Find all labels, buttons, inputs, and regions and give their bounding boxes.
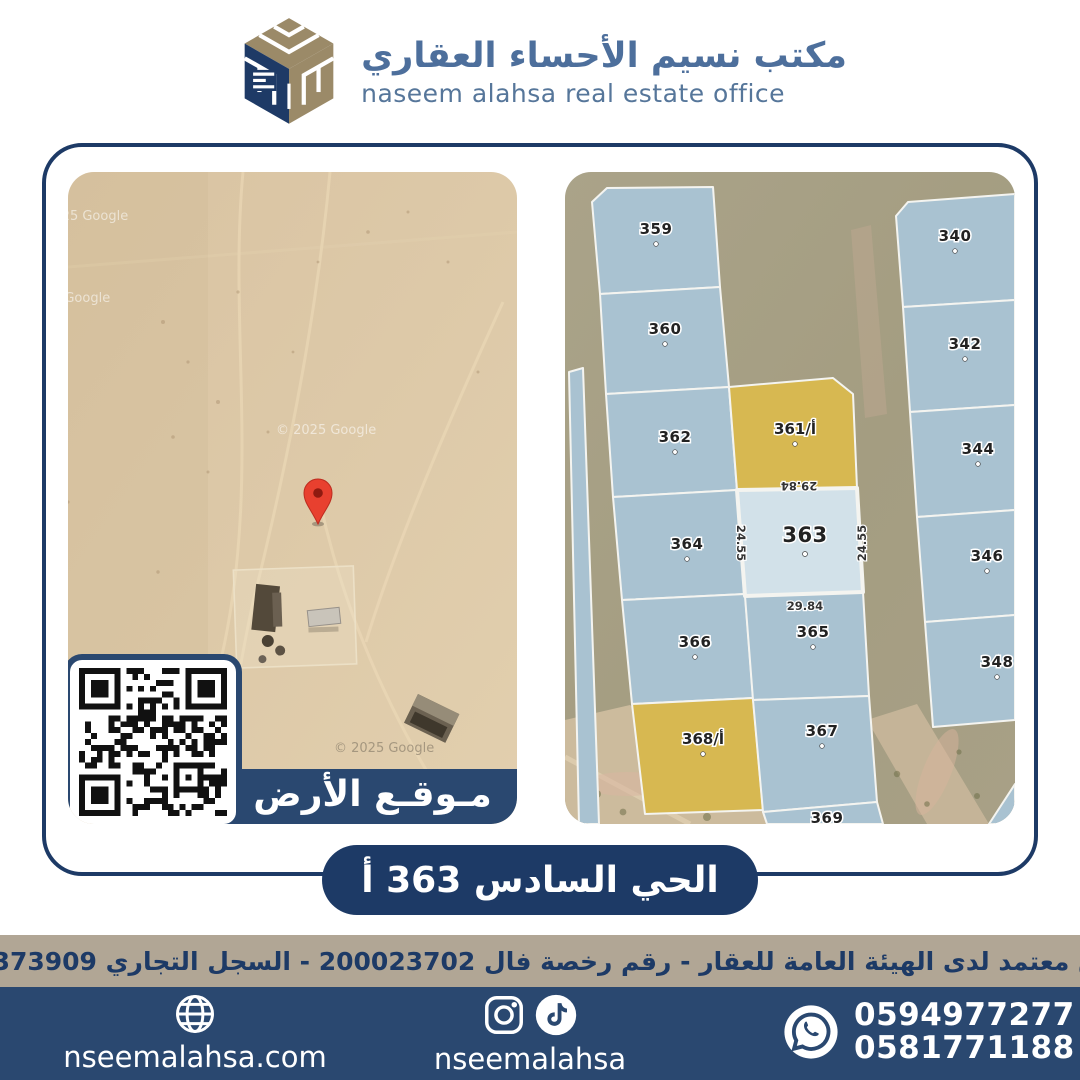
plot-344 [910, 405, 1015, 517]
google-watermark: © 2025 Google [68, 291, 110, 306]
social-group: nseemalahsa [430, 993, 630, 1076]
license-bar: مسوق معتمد لدى الهيئة العامة للعقار - رق… [0, 935, 1080, 987]
compound-structure [233, 566, 356, 668]
plot-360 [600, 287, 729, 394]
phone-number-2: 0581771188 [854, 1032, 1075, 1065]
plot-label-363: 363 [782, 523, 827, 547]
plot-348 [925, 615, 1015, 727]
website-url: nseemalahsa.com [63, 1040, 326, 1074]
plot-label: 362 [659, 428, 692, 446]
plot-label: أ/361 [774, 419, 816, 438]
plot-label: 342 [949, 335, 982, 353]
instagram-icon [482, 993, 526, 1037]
social-icons [482, 993, 578, 1037]
flyer-page: { "header": { "title_ar": "مكتب نسيم الأ… [0, 0, 1080, 1080]
company-logo-hexagon-icon [233, 15, 345, 129]
phone-number-1: 0594977277 [854, 999, 1075, 1032]
google-watermark: © 2025 Google [334, 741, 434, 756]
maps-container: © 2025 Google © 2025 Google © 2025 Googl… [42, 143, 1038, 876]
google-watermark: © 2025 Google [68, 209, 128, 224]
plot-359 [592, 187, 720, 294]
company-name-arabic: مكتب نسيم الأحساء العقاري [361, 35, 847, 79]
parcel-map-image: 359 360 362 364 366 أ/361 363 365 367 أ/… [565, 172, 1015, 824]
plot-label: 359 [640, 220, 673, 238]
plot-label: 366 [679, 633, 712, 651]
plot-label: أ/368 [682, 729, 724, 748]
satellite-map-panel: © 2025 Google © 2025 Google © 2025 Googl… [68, 172, 517, 824]
plot-367 [753, 696, 877, 812]
plot-label: 344 [962, 440, 995, 458]
plot-label: 348 [981, 653, 1014, 671]
district-banner-text: الحي السادس 363 أ [361, 860, 718, 901]
dim-right: 24.55 [855, 525, 869, 561]
district-banner: الحي السادس 363 أ [322, 845, 758, 915]
google-watermark: © 2025 Google [276, 423, 376, 438]
qr-code [68, 654, 242, 824]
website-group: nseemalahsa.com [95, 993, 295, 1074]
phone-group: 0594977277 0581771188 [782, 999, 1075, 1066]
plot-label: 360 [649, 320, 682, 338]
plot-342 [903, 300, 1015, 412]
plot-label: 346 [971, 547, 1004, 565]
dim-left: 24.55 [734, 525, 748, 561]
plot-label: 369 [811, 809, 844, 824]
globe-icon [174, 993, 216, 1035]
plot-label: 365 [797, 623, 830, 641]
company-name-english: naseem alahsa real estate office [361, 79, 785, 108]
location-label-bar: مـوقـع الأرض [228, 769, 517, 824]
license-text: مسوق معتمد لدى الهيئة العامة للعقار - رق… [0, 947, 1080, 976]
plot-346 [917, 510, 1015, 622]
social-handle: nseemalahsa [434, 1042, 626, 1076]
tiktok-icon [534, 993, 578, 1037]
plot-label: 364 [671, 535, 704, 553]
dim-top: 29.84 [781, 479, 817, 493]
dim-bottom: 29.84 [787, 599, 823, 613]
phone-numbers: 0594977277 0581771188 [854, 999, 1075, 1066]
location-label: مـوقـع الأرض [253, 774, 491, 819]
plot-label: 340 [939, 227, 972, 245]
whatsapp-icon [782, 1003, 840, 1061]
parcel-map-panel: 359 360 362 364 366 أ/361 363 365 367 أ/… [565, 172, 1015, 824]
header: مكتب نسيم الأحساء العقاري naseem alahsa … [0, 0, 1080, 143]
footer: nseemalahsa.com nseemalahsa 059 [0, 987, 1080, 1080]
plot-368 [632, 698, 763, 814]
company-titles: مكتب نسيم الأحساء العقاري naseem alahsa … [361, 35, 847, 108]
plot-label: 367 [806, 722, 839, 740]
